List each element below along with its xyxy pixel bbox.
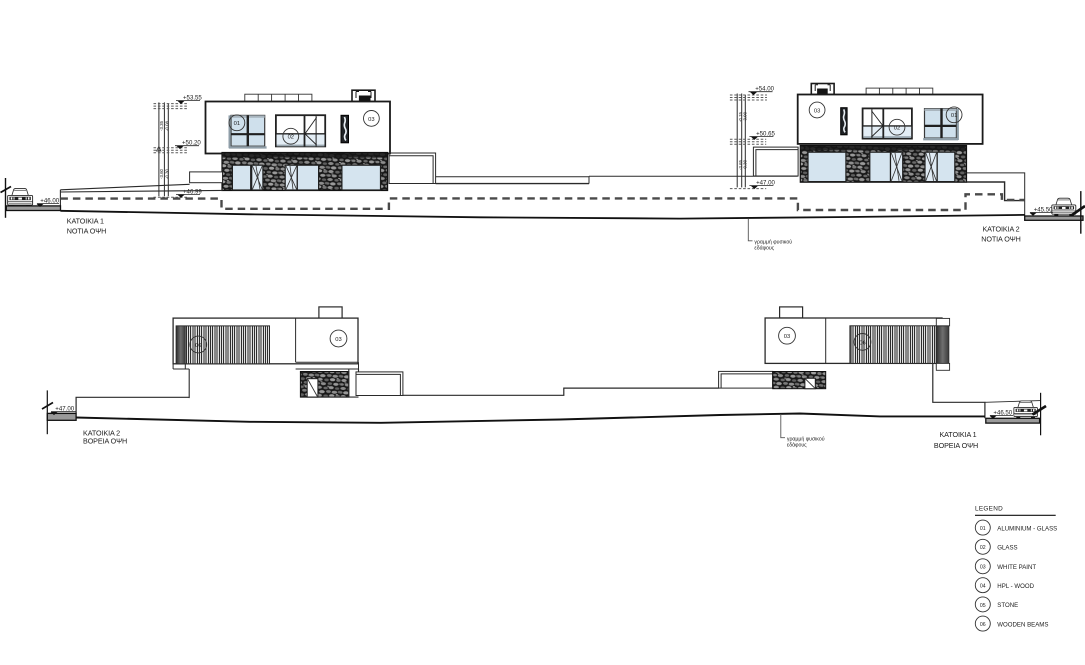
svg-text:WOODEN BEAMS: WOODEN BEAMS (997, 621, 1048, 628)
svg-text:ΚΑΤΟΙΚΙΑ 1: ΚΑΤΟΙΚΙΑ 1 (939, 430, 976, 439)
svg-text:ΒΟΡΕΙΑ ΟΨΗ: ΒΟΡΕΙΑ ΟΨΗ (83, 437, 127, 446)
svg-text:ΚΑΤΟΙΚΙΑ 1: ΚΑΤΟΙΚΙΑ 1 (67, 216, 104, 225)
svg-text:03: 03 (368, 117, 374, 123)
svg-text:03: 03 (980, 565, 986, 571)
svg-text:γραμμή φυσικού: γραμμή φυσικού (787, 435, 825, 442)
svg-text:03: 03 (335, 337, 341, 343)
svg-text:WHITE PAINT: WHITE PAINT (997, 564, 1036, 571)
svg-text:-0.08: -0.08 (165, 120, 170, 131)
svg-text:εδάφους: εδάφους (754, 245, 774, 252)
svg-text:GLASS: GLASS (997, 545, 1017, 552)
svg-text:02: 02 (894, 126, 900, 132)
svg-text:ΒΟΡΕΙΑ ΟΨΗ: ΒΟΡΕΙΑ ΟΨΗ (934, 441, 978, 450)
svg-text:06: 06 (859, 340, 865, 346)
svg-text:03: 03 (814, 108, 820, 114)
svg-text:-0.30: -0.30 (742, 159, 747, 170)
svg-text:ΝΟΤΙΑ ΟΨΗ: ΝΟΤΙΑ ΟΨΗ (67, 227, 106, 236)
svg-text:γραμμή φυσικού: γραμμή φυσικού (754, 239, 792, 246)
svg-text:ALUMINIUM - GLASS: ALUMINIUM - GLASS (997, 525, 1057, 532)
svg-text:06: 06 (195, 343, 201, 349)
svg-text:-3.35: -3.35 (159, 120, 164, 131)
svg-text:01: 01 (951, 113, 957, 119)
svg-text:01: 01 (234, 121, 240, 127)
svg-text:-3.00: -3.00 (742, 111, 747, 122)
svg-text:-0.30: -0.30 (165, 168, 170, 179)
svg-text:03: 03 (784, 334, 790, 340)
svg-text:02: 02 (288, 135, 294, 141)
svg-text:HPL - WOOD: HPL - WOOD (997, 583, 1034, 590)
svg-text:ΝΟΤΙΑ ΟΨΗ: ΝΟΤΙΑ ΟΨΗ (981, 234, 1020, 243)
svg-text:STONE: STONE (997, 602, 1018, 609)
svg-text:05: 05 (980, 603, 986, 609)
svg-text:01: 01 (980, 526, 986, 532)
svg-text:ΚΑΤΟΙΚΙΑ 2: ΚΑΤΟΙΚΙΑ 2 (982, 225, 1019, 234)
svg-text:LEGEND: LEGEND (975, 506, 1003, 513)
svg-text:-3.60: -3.60 (159, 168, 164, 179)
svg-text:04: 04 (980, 584, 986, 590)
svg-text:06: 06 (980, 622, 986, 628)
svg-text:02: 02 (980, 545, 986, 551)
svg-text:εδάφους: εδάφους (787, 441, 807, 448)
